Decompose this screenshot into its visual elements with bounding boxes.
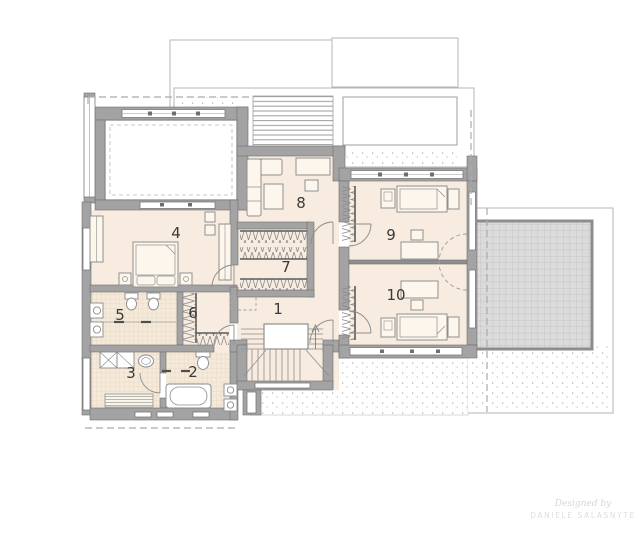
washbasin [90,303,103,318]
rooftop-skylight [343,97,457,145]
bed-double [133,242,178,287]
room-label-2: 2 [188,363,198,381]
window-room9-right [469,192,476,250]
room-label-9: 9 [386,226,396,244]
window-room10-right [469,270,476,328]
room-label-7: 7 [281,258,291,276]
balcony-grid [473,221,592,349]
balcony [473,221,592,349]
floor-plan-page: 1 2 3 4 5 6 7 8 9 10 Designed by DANIELE… [0,0,638,556]
nightstand [448,317,459,337]
window-bay-column [247,392,256,413]
chair-room9 [411,230,423,240]
window-room10-bottom [350,348,462,356]
desk [296,158,330,175]
room-label-4: 4 [171,224,181,242]
chair-room10 [411,300,423,310]
watermark-line1: Designed by [554,499,612,509]
washbasin [224,399,237,411]
stair-void [264,324,308,349]
void-opening [105,120,237,200]
floor-plan: 1 2 3 4 5 6 7 8 9 10 Designed by DANIELE… [0,0,638,556]
bed-room9 [397,186,447,212]
desk-room9 [401,242,438,259]
desk-chair [305,180,318,191]
washbasin-oval [139,355,154,367]
desk-room10 [401,281,438,298]
bidet [147,293,160,310]
window-shower3-left [83,358,90,410]
nightstand [381,318,395,337]
bathtub [166,384,211,408]
room-label-8: 8 [296,194,306,212]
window-bath-bottom-1 [135,412,151,417]
room-label-6: 6 [188,304,198,322]
room-label-5: 5 [115,306,125,324]
coffee-table [264,184,283,209]
bed-room10 [397,314,447,340]
room-label-10: 10 [386,286,405,304]
washbasin [90,322,103,337]
nightstand [381,189,395,208]
window-stair-bay [255,383,310,388]
wardrobe-room9 [342,186,355,242]
wardrobe-cabinet [90,216,103,262]
radiator-bench [105,394,153,407]
watermark-line2: DANIELE SALASNYTE [530,511,636,520]
nightstand [119,273,131,285]
designer-watermark: Designed by DANIELE SALASNYTE [530,499,636,520]
nightstand [448,189,459,209]
window-bath-bottom-3 [193,412,209,417]
room-label-3: 3 [126,364,136,382]
nightstand [180,273,192,285]
wardrobe-room10 [342,286,355,340]
toilet [196,352,210,370]
lower-terrace-right [468,346,611,412]
room-label-1: 1 [273,300,283,318]
window-void-bottom [140,202,215,209]
pergola-slats [253,96,333,147]
window-bath-bottom-2 [157,412,173,417]
washbasin [224,384,237,396]
toilet [125,293,138,310]
window-bedroom4-left [83,228,90,270]
